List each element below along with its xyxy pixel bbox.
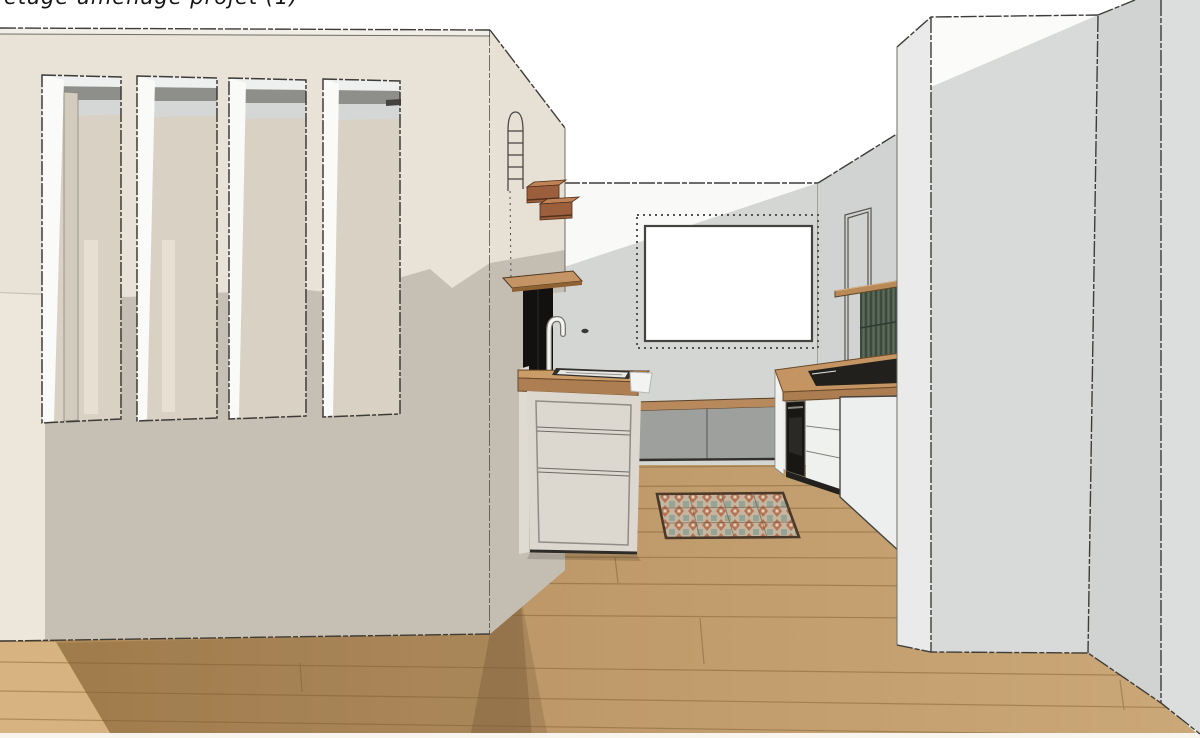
window-opening-2 (137, 76, 217, 421)
window1-inner-jamb-bar (64, 92, 78, 421)
island-end-block (630, 372, 652, 393)
window-opening-4 (323, 79, 401, 417)
kitchen-drawer-fronts (806, 399, 840, 489)
window1-light-strip (84, 240, 98, 414)
right-column (897, 0, 1200, 734)
island-base-line (530, 551, 637, 553)
column-front-face (931, 15, 1098, 653)
bench (634, 398, 778, 460)
column-left-face (897, 17, 931, 652)
oven-handle (788, 407, 803, 408)
screen-panel (645, 226, 812, 341)
oven-window (789, 417, 802, 456)
floor-bottom-strip (0, 733, 1200, 738)
window-opening-1 (42, 75, 121, 423)
render-viewport[interactable]: étage aménagé projet (1) (0, 0, 1200, 738)
left-partition-wall (0, 28, 565, 641)
built-in-oven (786, 401, 805, 477)
bench-base-line (636, 459, 777, 460)
column-right-face (1161, 0, 1200, 734)
scene-svg (0, 0, 1200, 738)
column-return-face (1088, 0, 1161, 703)
window2-light-strip (162, 240, 175, 412)
left-wall-lit-strip (0, 293, 45, 641)
wall-screen (637, 215, 818, 348)
window4-dark-mark (386, 99, 401, 106)
rug (657, 493, 799, 538)
wall-outlet (581, 329, 588, 333)
window-opening-3 (229, 78, 306, 419)
